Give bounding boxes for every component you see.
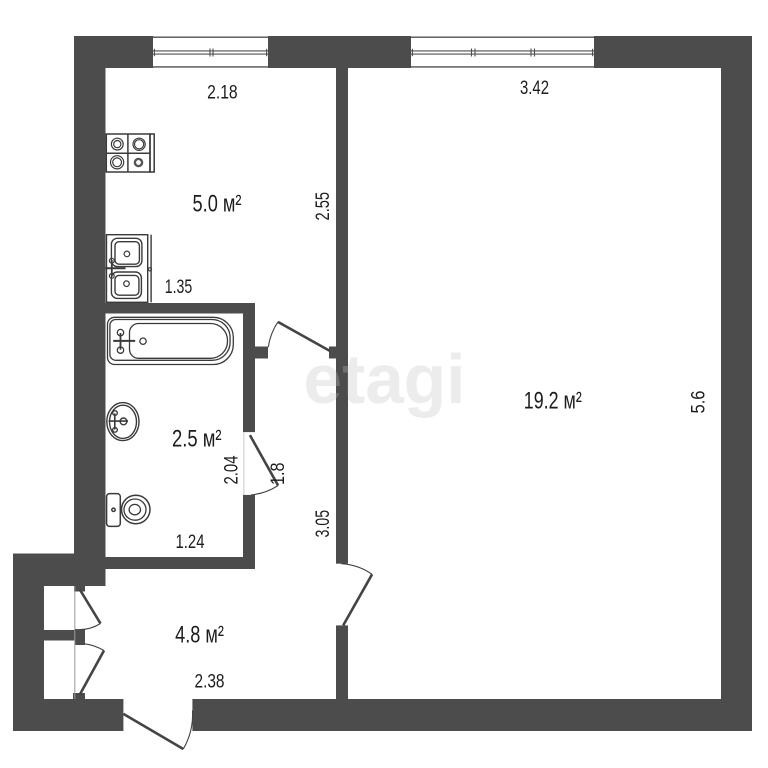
svg-text:2.04: 2.04 (220, 455, 242, 484)
svg-text:1.35: 1.35 (165, 276, 193, 298)
svg-text:1.8: 1.8 (267, 463, 289, 486)
svg-text:2.18: 2.18 (207, 82, 238, 104)
svg-text:etagi: etagi (304, 340, 466, 418)
svg-text:1.24: 1.24 (176, 531, 205, 553)
svg-text:2.55: 2.55 (312, 192, 334, 221)
svg-text:5.6: 5.6 (688, 391, 710, 414)
svg-text:3.05: 3.05 (312, 510, 334, 538)
svg-text:4.8 м²: 4.8 м² (175, 621, 224, 648)
svg-text:2.5 м²: 2.5 м² (172, 425, 222, 452)
svg-text:3.42: 3.42 (520, 77, 549, 99)
svg-text:19.2 м²: 19.2 м² (524, 387, 582, 414)
svg-text:5.0 м²: 5.0 м² (193, 190, 242, 217)
svg-text:2.38: 2.38 (195, 671, 225, 693)
